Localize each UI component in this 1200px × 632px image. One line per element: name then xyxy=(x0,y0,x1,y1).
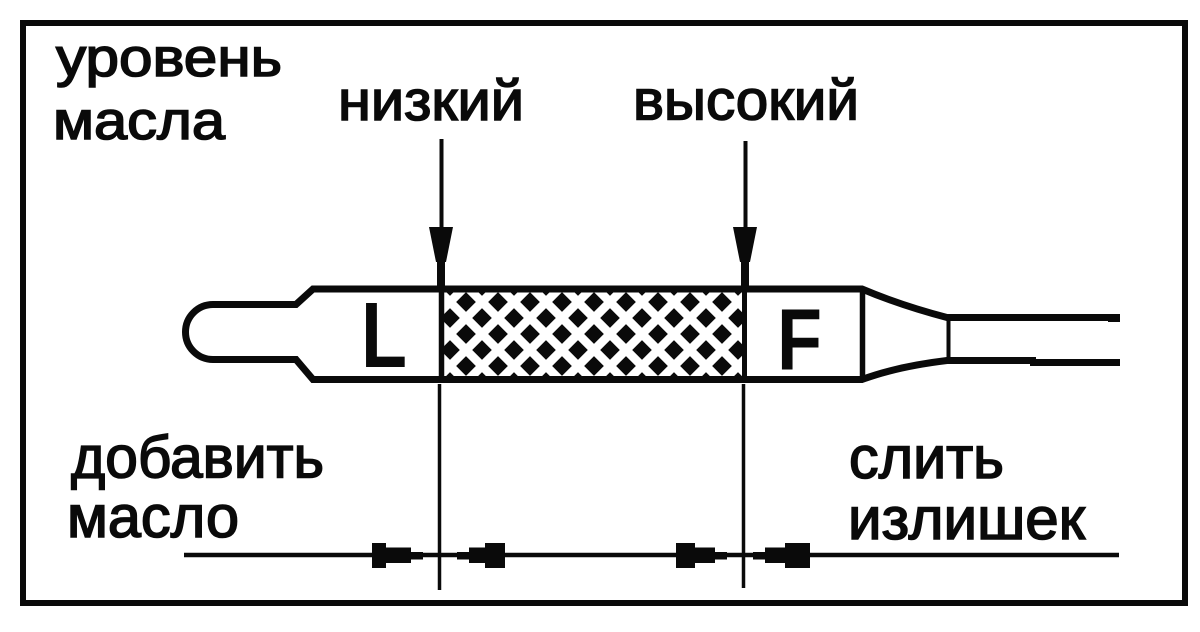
svg-text:добавить: добавить xyxy=(71,425,324,491)
svg-text:слить: слить xyxy=(849,425,1004,491)
svg-text:высокий: высокий xyxy=(633,69,859,133)
svg-text:масло: масло xyxy=(67,484,239,550)
svg-text:F: F xyxy=(777,292,822,389)
svg-text:масла: масла xyxy=(53,91,226,151)
svg-text:низкий: низкий xyxy=(338,69,524,133)
svg-text:уровень: уровень xyxy=(56,28,282,88)
svg-text:L: L xyxy=(361,283,407,387)
svg-text:излишек: излишек xyxy=(848,486,1086,552)
